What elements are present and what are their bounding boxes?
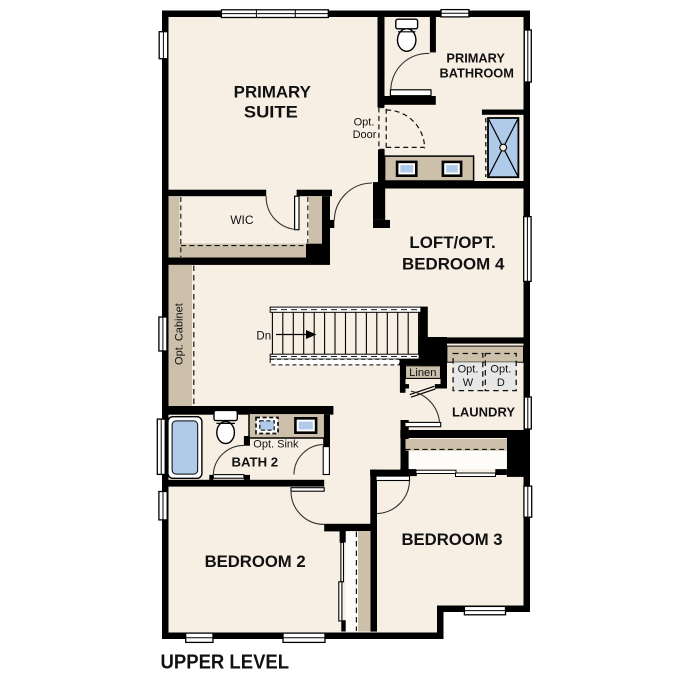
svg-text:Dn: Dn: [256, 331, 271, 343]
svg-text:LAUNDRY: LAUNDRY: [452, 404, 515, 419]
svg-text:BEDROOM 3: BEDROOM 3: [401, 530, 502, 549]
svg-text:Opt. Cabinet: Opt. Cabinet: [174, 303, 186, 365]
svg-text:BEDROOM 4: BEDROOM 4: [402, 254, 505, 273]
svg-text:BATH 2: BATH 2: [231, 455, 278, 470]
svg-text:BEDROOM 2: BEDROOM 2: [205, 552, 306, 571]
svg-text:UPPER LEVEL: UPPER LEVEL: [161, 652, 290, 674]
svg-text:PRIMARY: PRIMARY: [234, 83, 311, 102]
svg-text:BATHROOM: BATHROOM: [439, 66, 513, 81]
svg-text:WIC: WIC: [230, 213, 254, 227]
svg-text:Door: Door: [353, 129, 377, 141]
svg-text:Opt.: Opt.: [458, 364, 479, 376]
svg-text:Opt.: Opt.: [490, 364, 511, 376]
svg-text:PRIMARY: PRIMARY: [446, 51, 505, 66]
svg-text:LOFT/OPT.: LOFT/OPT.: [409, 233, 495, 252]
svg-text:Linen: Linen: [409, 367, 436, 379]
svg-text:D: D: [497, 377, 505, 389]
svg-text:Opt.: Opt.: [354, 116, 375, 128]
svg-text:W: W: [463, 377, 474, 389]
svg-text:Opt. Sink: Opt. Sink: [253, 439, 299, 451]
svg-text:SUITE: SUITE: [244, 103, 298, 122]
